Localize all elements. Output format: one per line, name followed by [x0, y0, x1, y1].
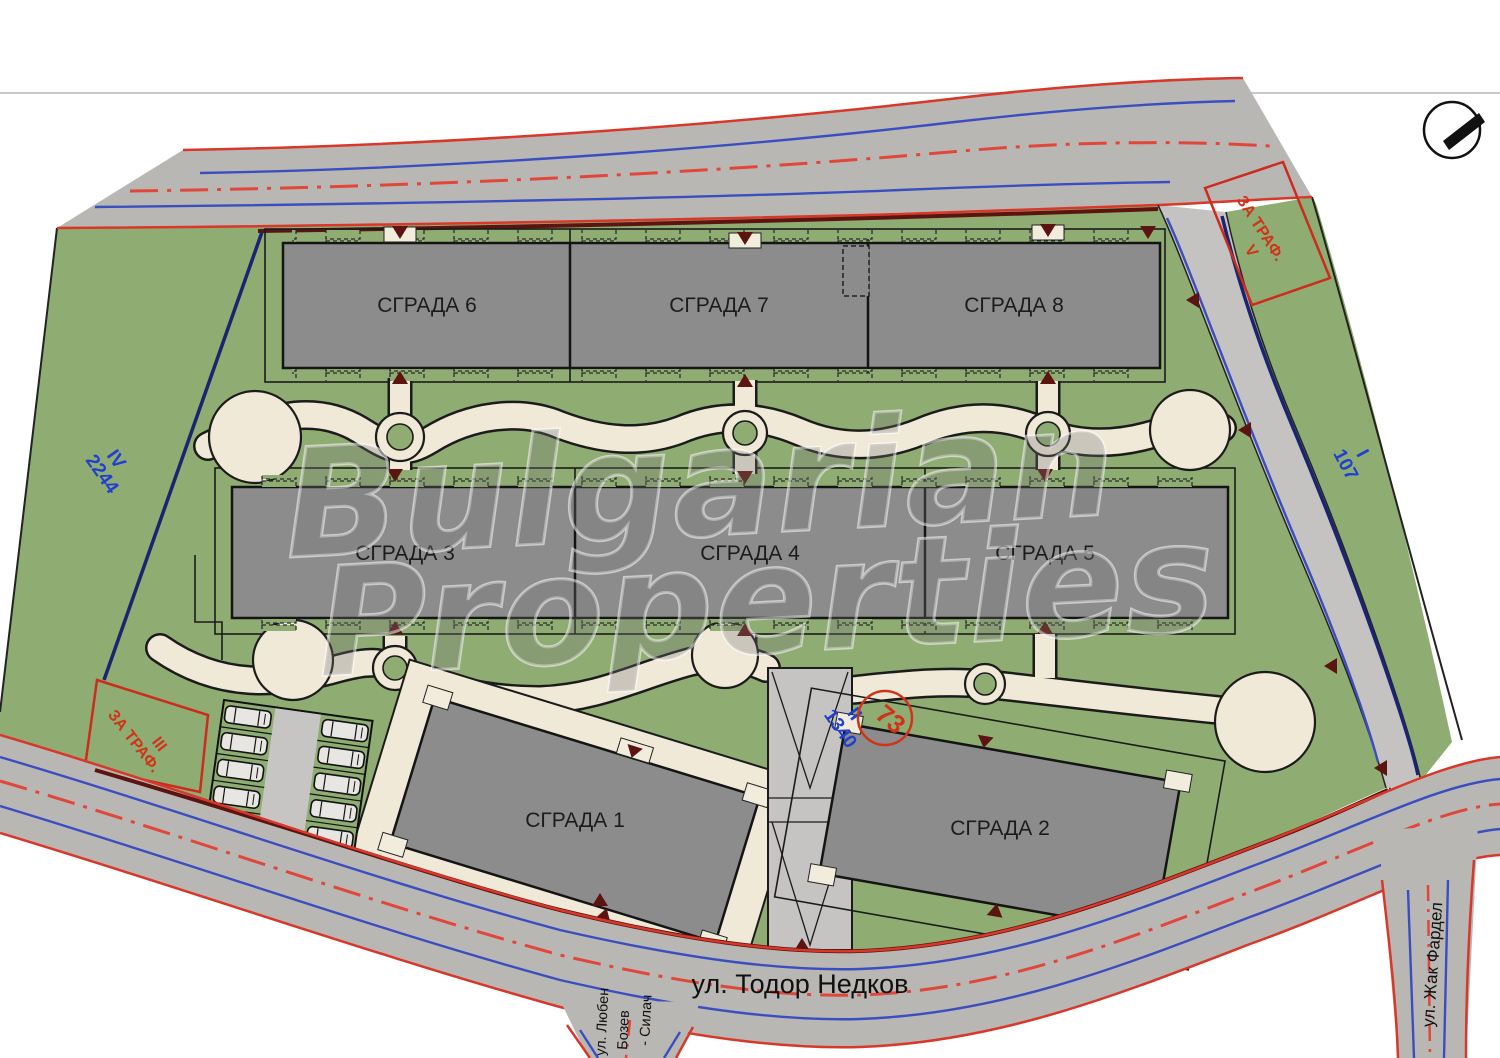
street-name-todor-nedkov: ул. Тодор Недков [692, 969, 909, 999]
site-plan-drawing: СГРАДА 6 СГРАДА 7 СГРАДА 8 СГРАДА 3 СГРА… [0, 0, 1500, 1058]
site-plan-canvas: СГРАДА 6 СГРАДА 7 СГРАДА 8 СГРАДА 3 СГРА… [0, 0, 1500, 1058]
building-7-notch [843, 246, 869, 296]
building-1-label: СГРАДА 1 [525, 809, 625, 832]
watermark: Bulgarian Properties [280, 371, 1220, 713]
building-8-label: СГРАДА 8 [964, 294, 1064, 317]
street-name-lyuben-3: - Силач [637, 994, 656, 1046]
street-name-lyuben-2: Бозев [615, 1009, 633, 1050]
building-2-label: СГРАДА 2 [950, 817, 1050, 840]
building-7-label: СГРАДА 7 [669, 294, 769, 317]
balconies-north-top [292, 230, 1148, 242]
balconies-north-bottom [292, 369, 1148, 381]
building-6-label: СГРАДА 6 [377, 294, 477, 317]
building-strip-north: СГРАДА 6 СГРАДА 7 СГРАДА 8 [283, 230, 1160, 381]
